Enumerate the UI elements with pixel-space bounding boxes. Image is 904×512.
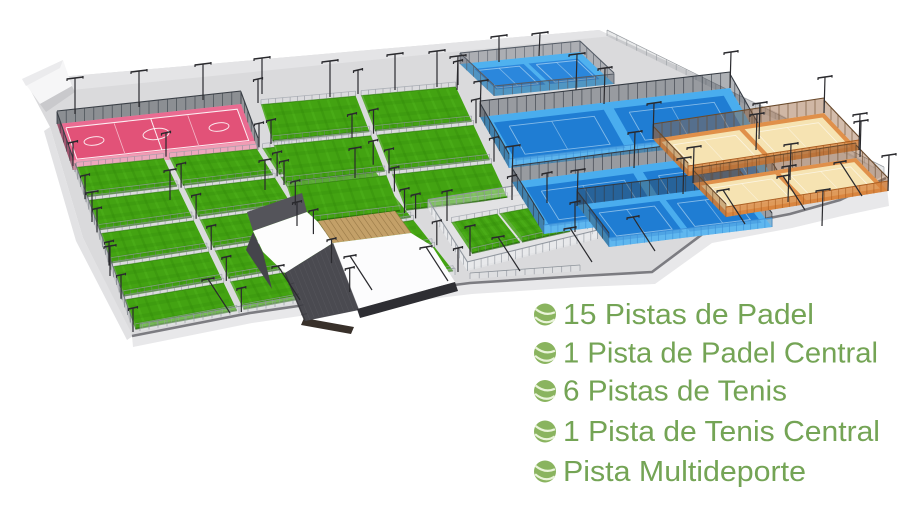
svg-text:15 Pistas de Padel: 15 Pistas de Padel [563,299,814,331]
svg-text:1 Pista de Padel Central: 1 Pista de Padel Central [563,338,878,370]
svg-text:Pista Multideporte: Pista Multideporte [563,456,806,488]
svg-text:1 Pista de Tenis Central: 1 Pista de Tenis Central [563,416,880,448]
svg-text:6 Pistas de Tenis: 6 Pistas de Tenis [563,376,787,408]
